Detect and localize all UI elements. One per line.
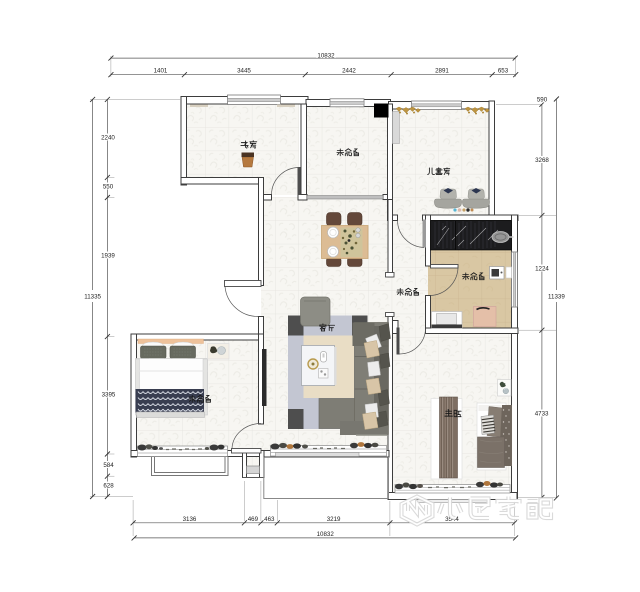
svg-text:584: 584 bbox=[103, 462, 114, 469]
svg-text:1401: 1401 bbox=[154, 68, 168, 75]
svg-text:590: 590 bbox=[537, 97, 548, 104]
svg-text:628: 628 bbox=[103, 483, 114, 490]
svg-text:2891: 2891 bbox=[435, 68, 449, 75]
svg-text:1224: 1224 bbox=[535, 266, 549, 273]
svg-text:10832: 10832 bbox=[317, 53, 335, 60]
svg-text:2240: 2240 bbox=[101, 135, 115, 142]
svg-text:11339: 11339 bbox=[548, 294, 565, 301]
svg-text:2442: 2442 bbox=[342, 68, 356, 75]
svg-text:653: 653 bbox=[498, 68, 509, 75]
svg-text:550: 550 bbox=[103, 184, 114, 191]
svg-text:3268: 3268 bbox=[535, 157, 549, 164]
svg-text:4733: 4733 bbox=[535, 411, 549, 418]
svg-text:11335: 11335 bbox=[84, 294, 101, 301]
svg-text:3395: 3395 bbox=[102, 392, 116, 399]
svg-text:3136: 3136 bbox=[183, 516, 197, 523]
svg-text:3445: 3445 bbox=[237, 68, 251, 75]
svg-text:463: 463 bbox=[264, 516, 275, 523]
svg-text:469: 469 bbox=[248, 516, 259, 523]
svg-text:3219: 3219 bbox=[327, 516, 341, 523]
svg-text:1939: 1939 bbox=[101, 253, 115, 260]
svg-text:10832: 10832 bbox=[317, 531, 335, 538]
